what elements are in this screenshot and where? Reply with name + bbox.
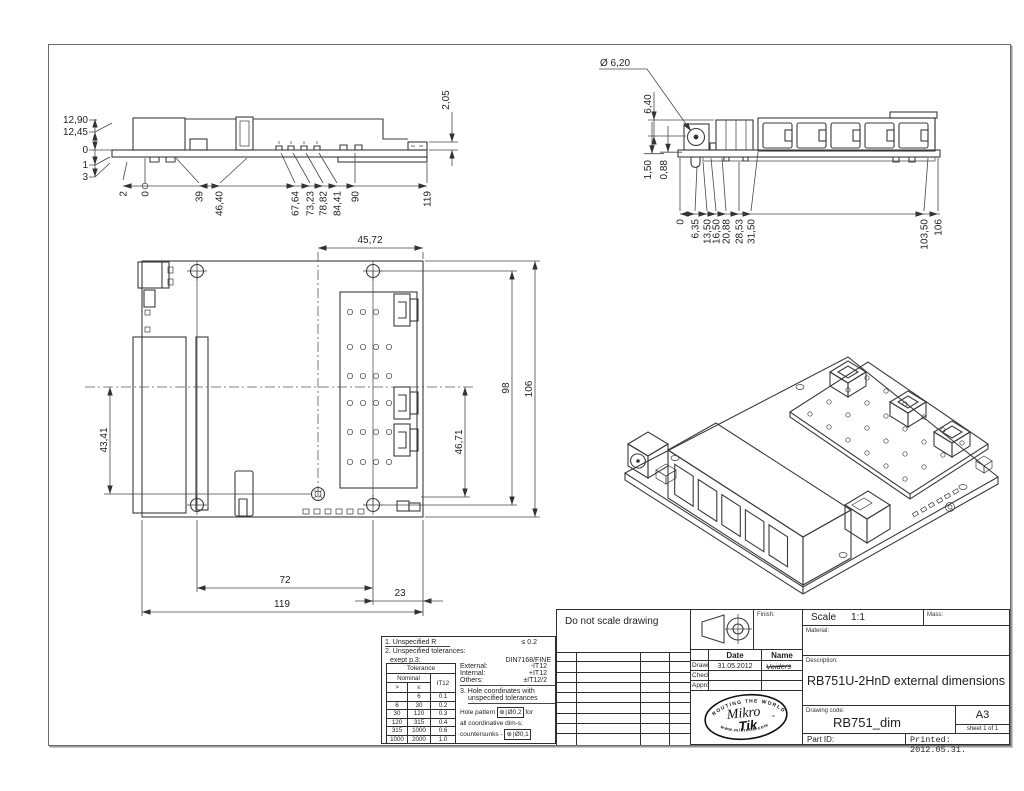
paper-size-cell: A3 <box>955 705 1010 725</box>
scale-label: Scale <box>811 612 836 623</box>
logo-cell: ROUTING THE WORLD www.mikrotik.com Mikro… <box>690 690 803 745</box>
tol-gt: > <box>387 683 408 693</box>
tol-nominal: Nominal <box>387 674 431 683</box>
scale-value: 1:1 <box>851 612 865 623</box>
finish-cell: Finish: <box>753 609 803 650</box>
tol-title: Tolerance <box>387 664 455 674</box>
dim-label: 6,35 <box>691 219 702 239</box>
dim-label: 1,50 <box>643 160 654 180</box>
sheet-info: sheet 1 of 1 <box>956 726 1009 732</box>
dim-label: 2 <box>119 191 130 197</box>
material-label: Material: <box>806 628 829 634</box>
scale-cell: Scale 1:1 <box>802 609 924 626</box>
dim-label: 0 <box>141 191 152 197</box>
drawing-code-cell: Drawing code: RB751_dim <box>802 705 956 734</box>
dim-label: 98 <box>501 382 512 394</box>
position-symbol: ⊕ <box>499 709 504 716</box>
dim-label: 45,72 <box>357 235 382 246</box>
projection-symbol <box>691 610 753 649</box>
note-1-value: ≤ 0.2 <box>521 639 537 646</box>
dim-label: 90 <box>351 191 362 203</box>
dim-label: 0 <box>82 145 88 156</box>
dim-label: 46,71 <box>454 429 465 454</box>
dim-label: 84,41 <box>333 191 344 216</box>
tol-it12: IT12 <box>431 674 455 693</box>
dim-label: 106 <box>524 380 535 397</box>
dim-label: 31,50 <box>747 219 758 244</box>
note-1: 1. Unspecified R <box>385 639 450 647</box>
finish-label: Finish: <box>757 612 775 618</box>
drawing-page: 12,90 12,45 0 1 3 2 0 39 46,40 67,64 73,… <box>0 0 1024 791</box>
iso-connectors <box>830 361 970 457</box>
dim-label: 28,53 <box>735 219 746 244</box>
tolerance-table: Tolerance Nominal IT12 > ≤ 6 0.1 6 30 0.… <box>386 663 456 744</box>
drawn-date: 31.05.2012 <box>709 663 761 670</box>
dim-label: 106 <box>934 219 945 236</box>
dim-label: 2,05 <box>441 90 452 110</box>
do-not-scale-cell: Do not scale drawing <box>556 609 691 653</box>
dim-label: 12,90 <box>63 115 88 126</box>
tol-le: ≤ <box>408 683 431 693</box>
dim-label: 12,45 <box>63 127 88 138</box>
part-id-label: Part ID: <box>807 735 834 744</box>
dim-label: 6,40 <box>643 94 654 114</box>
dim-label: 78,82 <box>319 191 330 216</box>
material-cell: Material: <box>802 625 1010 656</box>
dim-label: 46,40 <box>215 191 226 216</box>
description-cell: Description: RB751U-2HnD external dimens… <box>802 655 1010 706</box>
dim-label: 3 <box>82 172 88 183</box>
note-2: 2. Unspecified tolerances: <box>385 648 466 655</box>
mass-label: Mass: <box>927 612 943 618</box>
mass-cell: Mass: <box>923 609 1010 626</box>
dim-label: 43,41 <box>99 427 110 452</box>
isometric-view <box>625 357 998 594</box>
dim-label: 67,64 <box>291 191 302 216</box>
dim-label: 73,23 <box>306 191 317 216</box>
mikrotik-logo: ROUTING THE WORLD www.mikrotik.com Mikro… <box>691 691 802 744</box>
do-not-scale-note: Do not scale drawing <box>565 616 658 627</box>
printed-cell: Printed: 2012.05.31. <box>905 733 1010 745</box>
printed-date: Printed: 2012.05.31. <box>910 735 1009 755</box>
paper-size: A3 <box>956 709 1009 721</box>
part-id-cell: Part ID: <box>802 733 906 745</box>
dim-label: 1 <box>82 160 88 171</box>
logo-tm: ™ <box>771 714 776 719</box>
fit-notes: External: -IT12 Internal: +IT12 Others: … <box>460 663 555 740</box>
drawing-code-value: RB751_dim <box>833 715 901 730</box>
dim-label: 72 <box>279 575 291 586</box>
dim-label: 20,88 <box>722 219 733 244</box>
dim-label: 0 <box>676 219 687 225</box>
logo-tik: Tik <box>738 717 759 734</box>
drawing-code-label: Drawing code: <box>806 708 844 714</box>
shield-connectors <box>394 294 418 456</box>
dim-label: 119 <box>423 191 434 207</box>
dim-label: 119 <box>274 599 290 610</box>
description-label: Description: <box>806 658 838 664</box>
dim-label: 103,50 <box>920 219 931 250</box>
position-symbol: ⊕ <box>506 731 511 738</box>
front-view: Ø 6,20 6,40 1,50 0,88 <box>599 58 945 250</box>
top-view: 45,72 98 106 43,41 46,71 72 <box>85 235 540 616</box>
projection-symbol-cell <box>690 609 754 650</box>
dim-label: 0,88 <box>659 160 670 180</box>
side-view: 12,90 12,45 0 1 3 2 0 39 46,40 67,64 73,… <box>63 90 458 216</box>
dim-label: 39 <box>195 191 206 203</box>
dim-label: Ø 6,20 <box>600 58 630 69</box>
description-value: RB751U-2HnD external dimensions <box>803 674 1009 688</box>
dim-label: 23 <box>394 588 406 599</box>
revision-table <box>556 652 691 745</box>
